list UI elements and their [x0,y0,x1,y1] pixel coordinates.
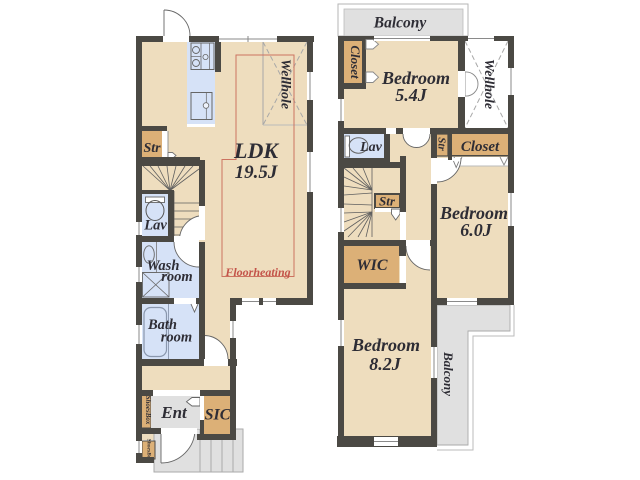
svg-text:Bedroom: Bedroom [351,335,420,355]
svg-text:Floorheating: Floorheating [224,265,290,279]
svg-text:Balcony: Balcony [373,15,427,32]
svg-text:Lav: Lav [143,218,167,234]
svg-text:Balcony: Balcony [441,351,456,396]
svg-text:Str: Str [436,137,448,151]
svg-text:Lav: Lav [359,140,383,155]
svg-text:ShoesBox: ShoesBox [144,396,152,425]
svg-text:Wellhole: Wellhole [481,59,496,109]
svg-text:Str: Str [379,194,396,209]
svg-text:19.5J: 19.5J [235,162,278,183]
svg-text:room: room [161,330,192,346]
svg-text:8.2J: 8.2J [369,354,402,374]
svg-text:Closet: Closet [461,139,500,155]
svg-text:Ent: Ent [160,403,188,422]
svg-text:SIC: SIC [205,407,231,424]
svg-text:Wellhole: Wellhole [278,59,293,109]
svg-text:LDK: LDK [233,138,279,163]
svg-text:6.0J: 6.0J [460,220,493,240]
svg-text:Str: Str [143,141,161,156]
svg-text:room: room [161,269,192,285]
svg-text:WIC: WIC [356,257,387,274]
svg-text:Closet: Closet [348,45,363,79]
svg-text:5.4J: 5.4J [395,85,428,105]
